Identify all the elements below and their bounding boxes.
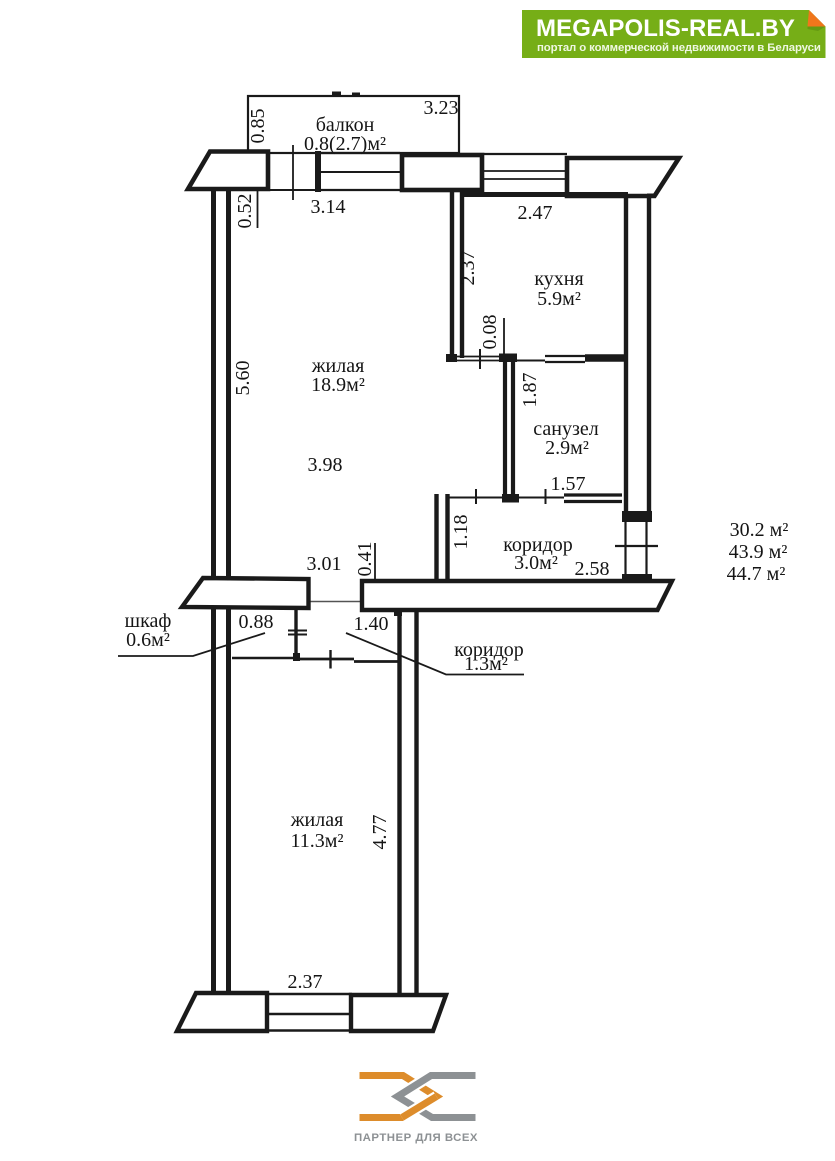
svg-text:0.52: 0.52 (234, 194, 256, 229)
svg-text:3.0м²: 3.0м² (514, 552, 558, 574)
svg-text:30.2 м²: 30.2 м² (730, 519, 789, 541)
svg-text:1.3м²: 1.3м² (464, 653, 508, 675)
svg-text:2.9м²: 2.9м² (545, 437, 589, 459)
svg-text:0.88: 0.88 (239, 611, 274, 633)
svg-text:11.3м²: 11.3м² (291, 830, 344, 852)
svg-text:1.87: 1.87 (519, 373, 541, 408)
svg-text:2.47: 2.47 (518, 202, 553, 224)
svg-text:3.01: 3.01 (307, 553, 342, 575)
svg-text:ПАРТНЕР ДЛЯ ВСЕХ: ПАРТНЕР ДЛЯ ВСЕХ (354, 1132, 478, 1144)
svg-text:1.18: 1.18 (450, 515, 472, 550)
svg-text:2.37: 2.37 (457, 251, 479, 286)
svg-text:5.60: 5.60 (232, 361, 254, 396)
svg-text:44.7 м²: 44.7 м² (727, 563, 786, 585)
svg-text:0.85: 0.85 (247, 109, 269, 144)
svg-text:портал о коммерческой недвижим: портал о коммерческой недвижимости в Бел… (537, 42, 821, 54)
svg-text:5.9м²: 5.9м² (537, 288, 581, 310)
svg-text:1.40: 1.40 (354, 613, 389, 635)
svg-text:0.6м²: 0.6м² (126, 629, 170, 651)
svg-text:кухня: кухня (534, 268, 583, 290)
svg-text:3.23: 3.23 (424, 97, 459, 119)
svg-text:43.9 м²: 43.9 м² (729, 541, 788, 563)
svg-text:0.8(2.7)м²: 0.8(2.7)м² (304, 133, 386, 155)
svg-text:3.98: 3.98 (308, 454, 343, 476)
svg-text:18.9м²: 18.9м² (311, 374, 365, 396)
svg-text:2.37: 2.37 (288, 971, 323, 993)
svg-text:0.08: 0.08 (479, 315, 501, 350)
svg-text:3.14: 3.14 (311, 196, 346, 218)
svg-text:1.57: 1.57 (551, 473, 586, 495)
svg-text:2.58: 2.58 (575, 558, 610, 580)
svg-text:4.77: 4.77 (369, 815, 391, 850)
svg-text:жилая: жилая (290, 809, 344, 831)
svg-text:MEGAPOLIS-REAL.BY: MEGAPOLIS-REAL.BY (536, 15, 795, 42)
svg-text:0.41: 0.41 (354, 542, 376, 577)
